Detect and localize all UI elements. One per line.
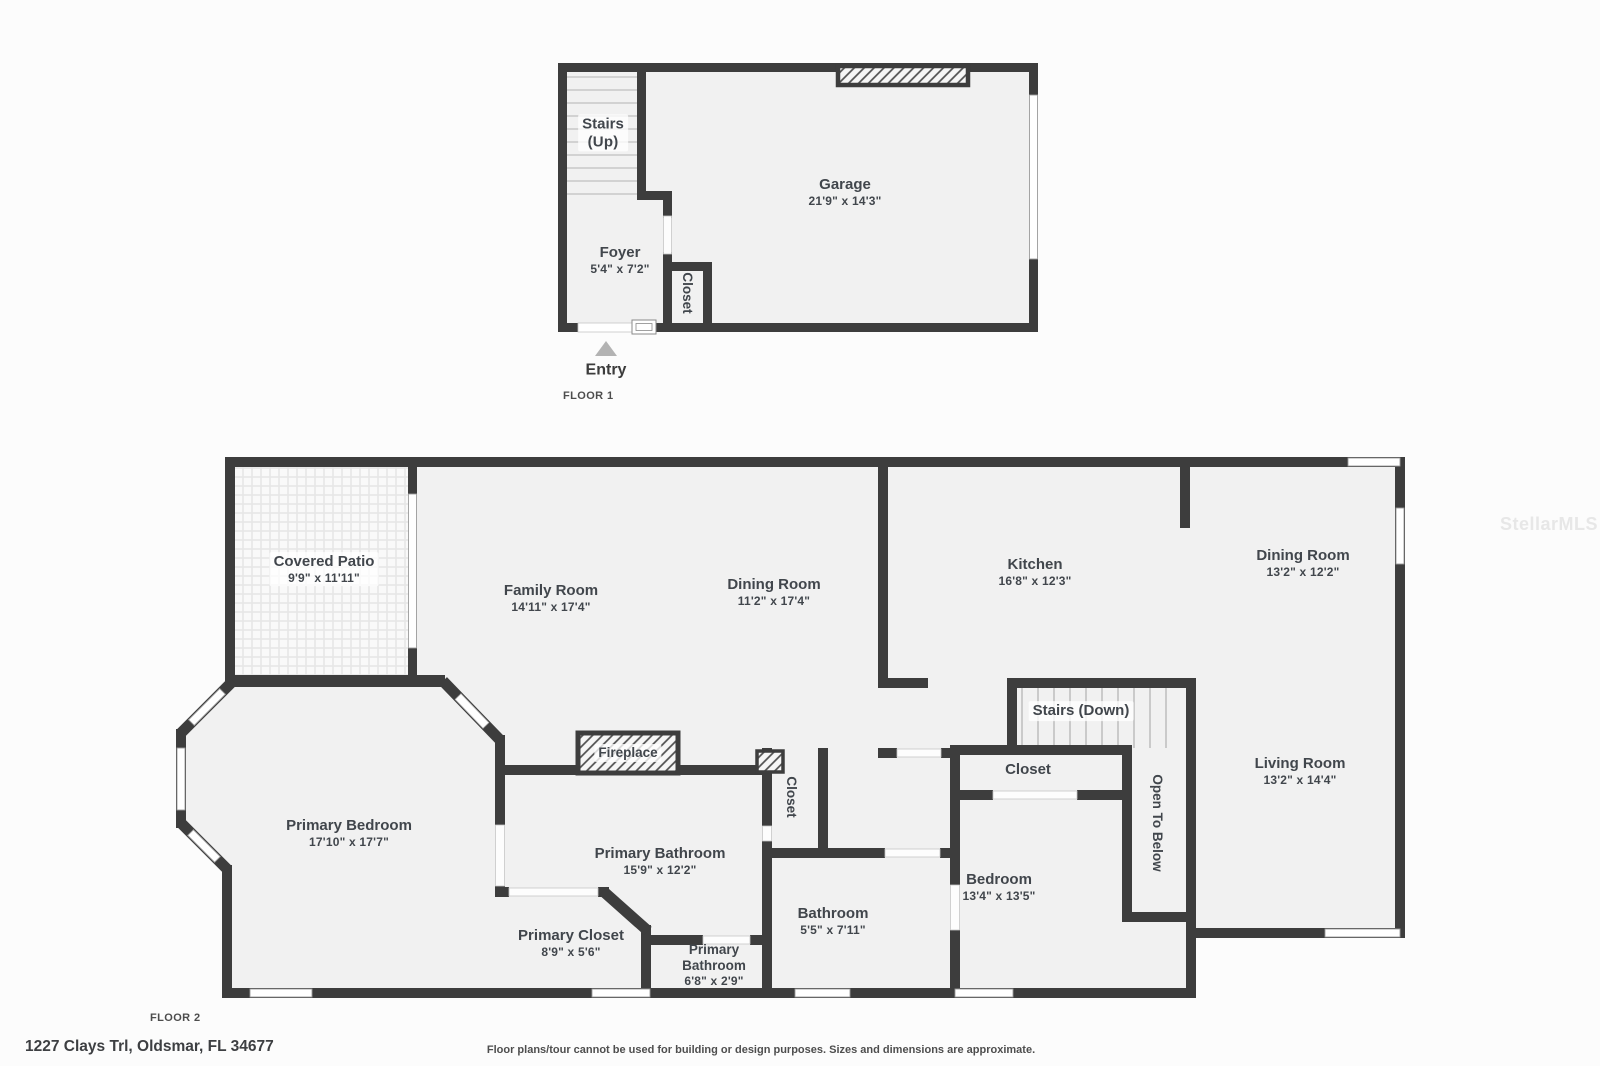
- room-dims: 5'5" x 7'11": [798, 923, 869, 937]
- room-name: Bedroom: [962, 871, 1035, 889]
- room-label-primary-bathroom: Primary Bathroom 15'9" x 12'2": [595, 845, 726, 877]
- room-label-living-room: Living Room 13'2" x 14'4": [1255, 755, 1346, 787]
- room-name: Covered Patio: [274, 553, 375, 571]
- room-name: Closet: [783, 776, 799, 817]
- room-label-primary-bedroom: Primary Bedroom 17'10" x 17'7": [286, 817, 412, 849]
- stellar-mls-watermark: StellarMLS: [1500, 514, 1598, 535]
- property-address: 1227 Clays Trl, Oldsmar, FL 34677: [25, 1038, 274, 1056]
- room-name: Primary Bathroom: [595, 845, 726, 863]
- room-label-bedroom: Bedroom 13'4" x 13'5": [962, 871, 1035, 903]
- room-label-dining-room-left: Dining Room 11'2" x 17'4": [727, 576, 820, 608]
- room-name: Dining Room: [727, 576, 820, 594]
- disclaimer-text: Floor plans/tour cannot be used for buil…: [487, 1044, 1035, 1056]
- floor2-tag: FLOOR 2: [150, 1012, 200, 1024]
- room-dims: 8'9" x 5'6": [518, 945, 624, 959]
- room-name: Primary: [682, 942, 746, 958]
- room-label-kitchen: Kitchen 16'8" x 12'3": [998, 556, 1071, 588]
- room-label-family-room: Family Room 14'11" x 17'4": [504, 582, 598, 614]
- bay-left-window: [177, 748, 185, 810]
- room-name: Kitchen: [998, 556, 1071, 574]
- room-label-dining-room-right: Dining Room 13'2" x 12'2": [1256, 547, 1349, 579]
- floor1-plan: [558, 63, 1038, 356]
- entry-arrow-icon: [595, 341, 617, 356]
- room-name: Living Room: [1255, 755, 1346, 773]
- bottom-window-3: [795, 989, 850, 997]
- room-dims: 5'4" x 7'2": [590, 262, 649, 276]
- room-name: Primary Closet: [518, 927, 624, 945]
- room-name: Garage: [808, 176, 881, 194]
- room-label-closet-primary: Closet: [783, 776, 799, 817]
- room-dims: 14'11" x 17'4": [504, 600, 598, 614]
- foyer-garage-door-opening: [664, 216, 672, 254]
- room-name: Dining Room: [1256, 547, 1349, 565]
- room-dims: (Up): [582, 133, 624, 151]
- room-name: Fireplace: [598, 745, 657, 761]
- entry-text: Entry: [586, 362, 627, 381]
- dining-right-window: [1396, 508, 1404, 564]
- room-label-primary-bathroom-small: Primary Bathroom 6'8" x 2'9": [682, 942, 746, 988]
- room-name: Closet: [679, 272, 695, 313]
- floor2-plan: [176, 457, 1405, 998]
- hatched-nook: [757, 751, 783, 772]
- room-label-fireplace: Fireplace: [594, 744, 661, 762]
- room-label-closet-hall: Closet: [1005, 761, 1051, 779]
- room-label-covered-patio: Covered Patio 9'9" x 11'11": [270, 552, 379, 586]
- room-name: Closet: [1005, 761, 1051, 779]
- room-label-garage: Garage 21'9" x 14'3": [808, 176, 881, 208]
- room-name: Stairs: [582, 115, 624, 133]
- room-name: Family Room: [504, 582, 598, 600]
- living-room-window: [1325, 929, 1400, 937]
- room-label-stairs-up: Stairs (Up): [578, 114, 628, 151]
- room-label-closet-f1: Closet: [679, 272, 695, 313]
- room-label-bathroom: Bathroom 5'5" x 7'11": [798, 905, 869, 937]
- room-label-open-to-below: Open To Below: [1149, 774, 1165, 871]
- room-dims: 6'8" x 2'9": [682, 974, 746, 988]
- patio-slider-window: [409, 494, 417, 648]
- room-label-stairs-down: Stairs (Down): [1029, 701, 1134, 721]
- garage-side-window: [1030, 95, 1038, 259]
- room-dims: 11'2" x 17'4": [727, 594, 820, 608]
- room-name: Open To Below: [1149, 774, 1165, 871]
- floorplan-page: Stairs (Up) Garage 21'9" x 14'3" Foyer 5…: [0, 0, 1600, 1066]
- garage-door: [838, 66, 968, 85]
- room-name: Foyer: [590, 244, 649, 262]
- room-label-foyer: Foyer 5'4" x 7'2": [590, 244, 649, 276]
- room-dims: 13'2" x 14'4": [1255, 773, 1346, 787]
- entry-door-symbol: [632, 320, 656, 334]
- dining-top-window: [1348, 458, 1400, 466]
- room-label-primary-closet: Primary Closet 8'9" x 5'6": [518, 927, 624, 959]
- bottom-window-2: [592, 989, 650, 997]
- bottom-window-4: [955, 989, 1013, 997]
- room-name: Primary Bedroom: [286, 817, 412, 835]
- room-name-line2: Bathroom: [682, 958, 746, 974]
- room-dims: 16'8" x 12'3": [998, 574, 1071, 588]
- entry-door-opening: [578, 323, 632, 332]
- room-name: Bathroom: [798, 905, 869, 923]
- floor1-tag: FLOOR 1: [563, 390, 613, 402]
- room-dims: 15'9" x 12'2": [595, 863, 726, 877]
- room-dims: 21'9" x 14'3": [808, 194, 881, 208]
- room-name: Stairs (Down): [1033, 702, 1130, 720]
- room-dims: 13'4" x 13'5": [962, 889, 1035, 903]
- room-dims: 17'10" x 17'7": [286, 835, 412, 849]
- room-dims: 9'9" x 11'11": [274, 571, 375, 585]
- entry-label: Entry: [586, 362, 627, 381]
- room-dims: 13'2" x 12'2": [1256, 565, 1349, 579]
- bottom-window-1: [250, 989, 312, 997]
